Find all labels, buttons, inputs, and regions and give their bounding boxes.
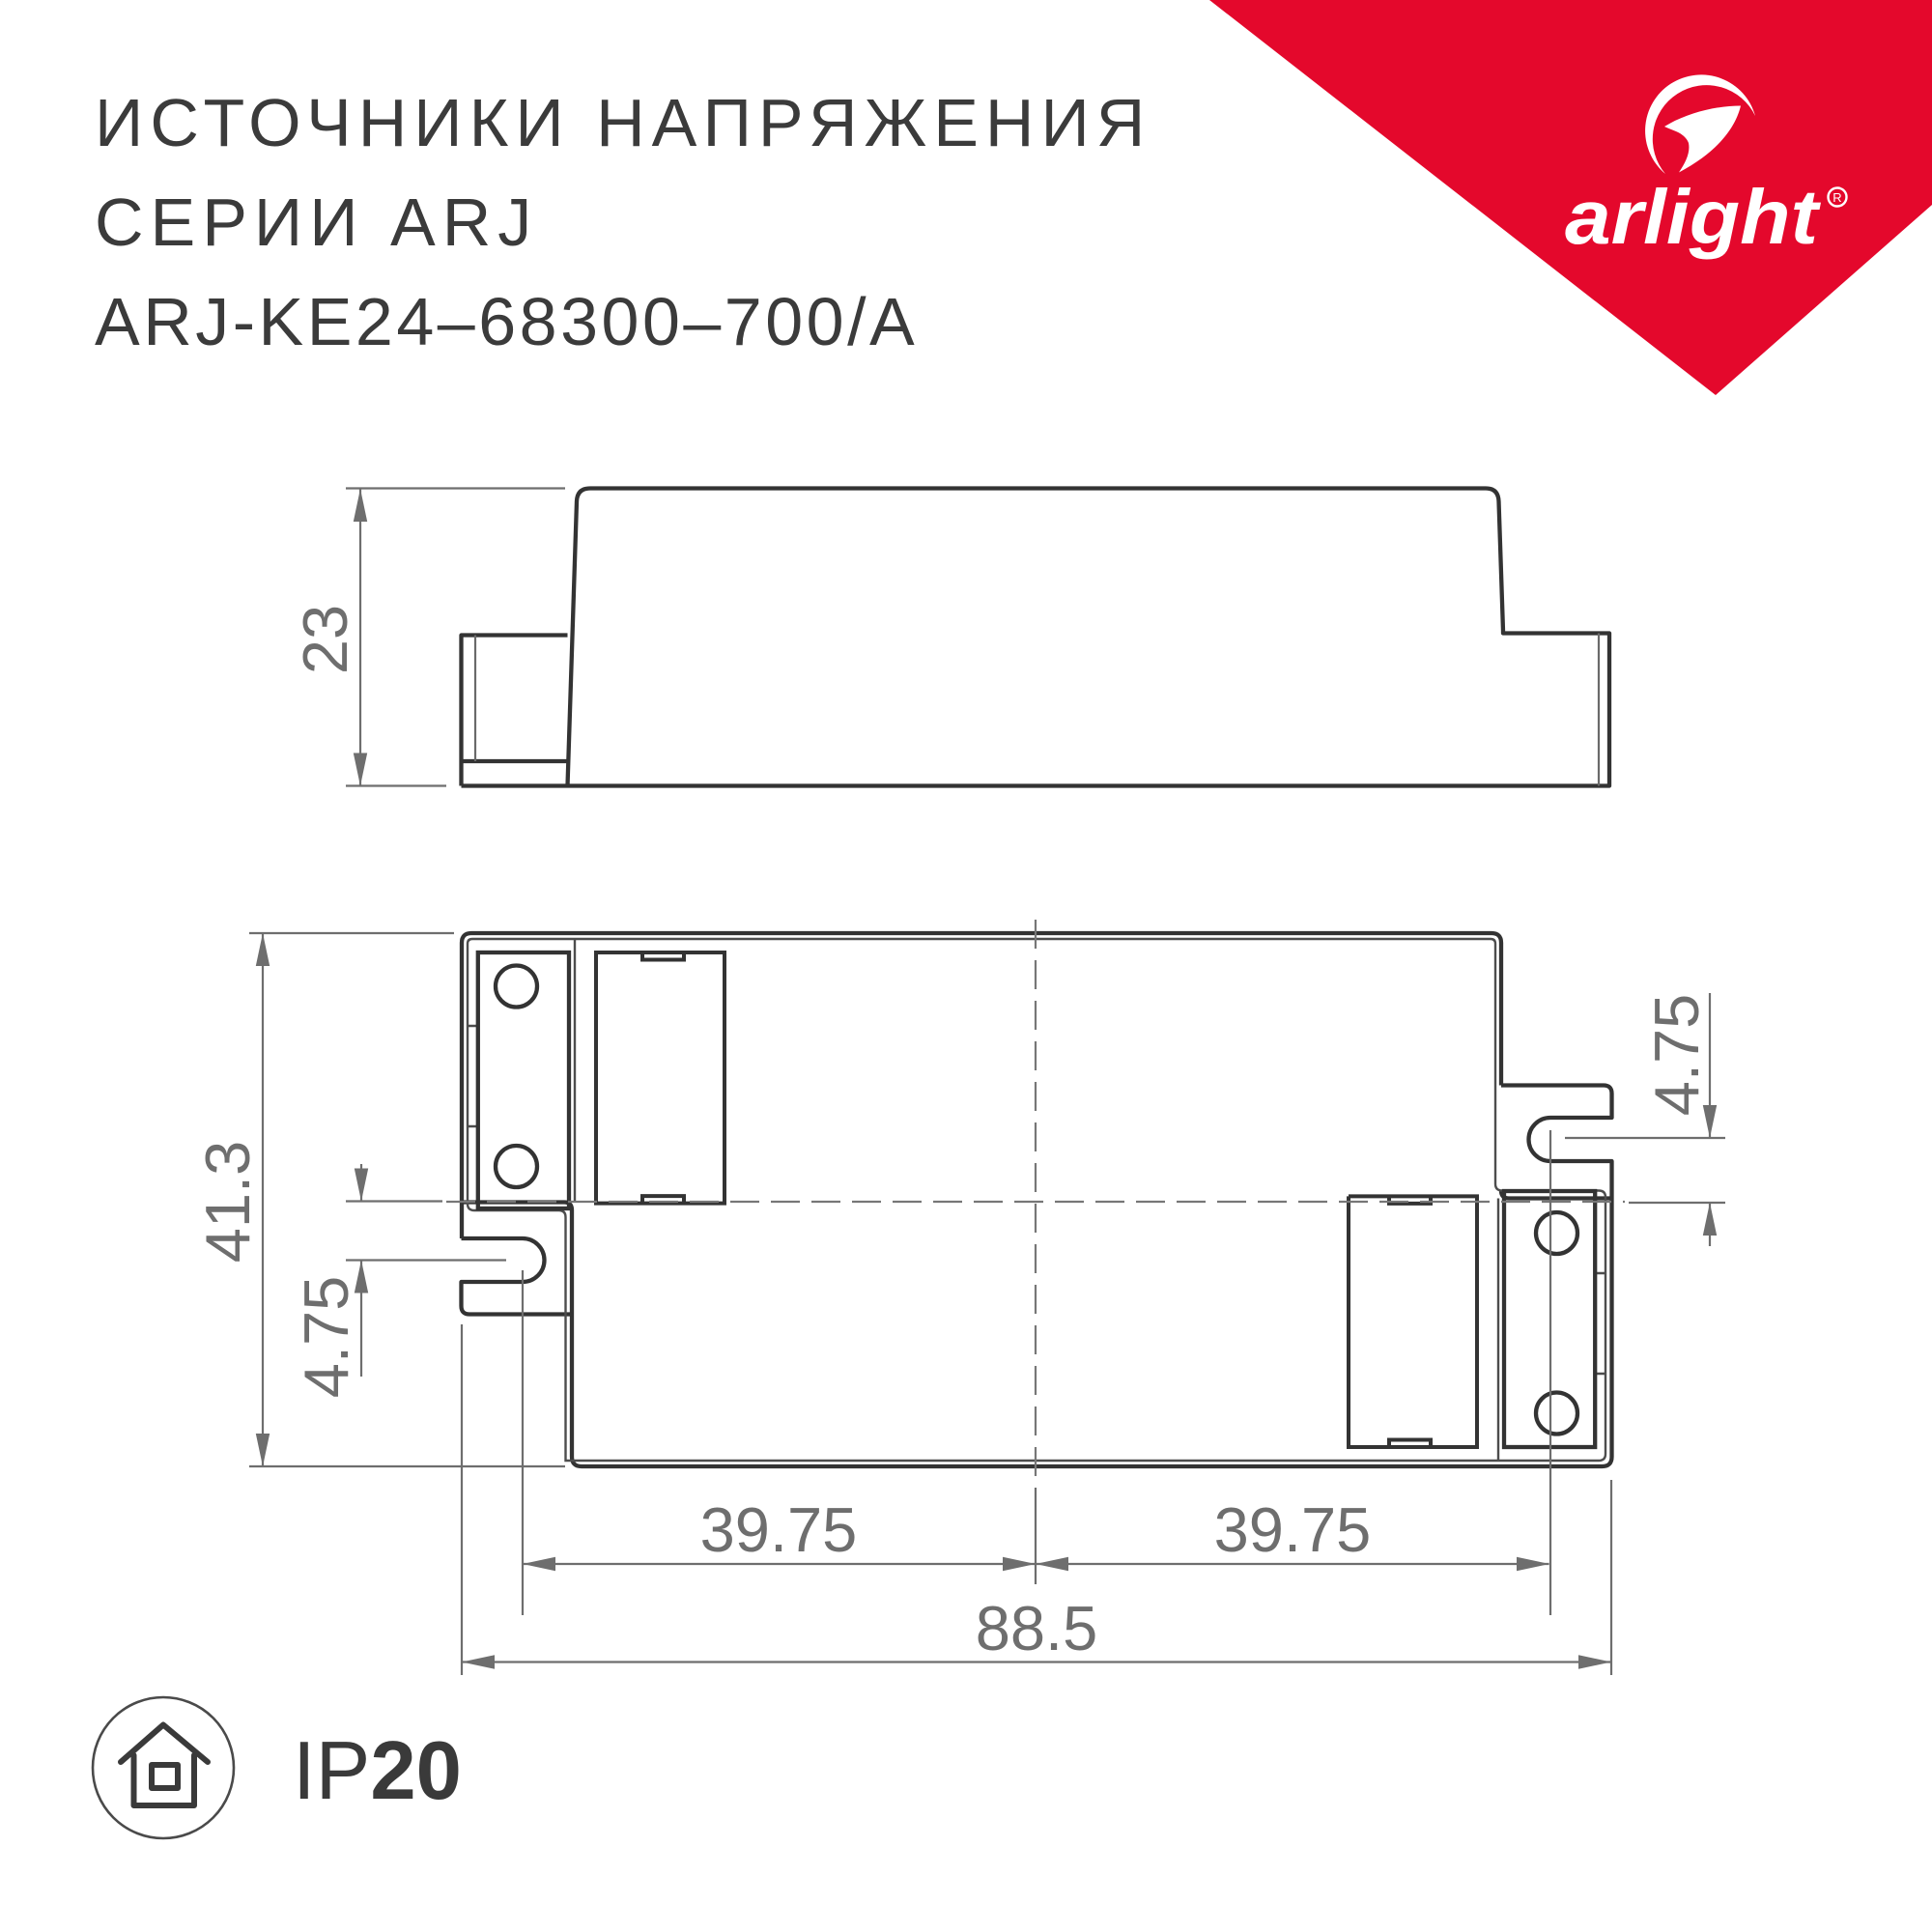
- svg-text:39.75: 39.75: [1214, 1494, 1372, 1565]
- svg-text:arlight: arlight: [1565, 174, 1822, 260]
- svg-text:СЕРИИ ARJ: СЕРИИ ARJ: [95, 185, 538, 260]
- svg-text:IP20: IP20: [293, 1725, 462, 1817]
- svg-text:23: 23: [290, 605, 360, 674]
- svg-text:88.5: 88.5: [976, 1593, 1098, 1663]
- svg-text:4.75: 4.75: [1641, 994, 1712, 1117]
- svg-text:ARJ-KE24–68300–700/А: ARJ-KE24–68300–700/А: [95, 284, 918, 359]
- svg-text:4.75: 4.75: [291, 1276, 361, 1399]
- svg-text:41.3: 41.3: [192, 1141, 263, 1264]
- svg-text:39.75: 39.75: [700, 1494, 858, 1565]
- svg-text:ИСТОЧНИКИ НАПРЯЖЕНИЯ: ИСТОЧНИКИ НАПРЯЖЕНИЯ: [95, 85, 1151, 160]
- svg-text:R: R: [1833, 190, 1841, 205]
